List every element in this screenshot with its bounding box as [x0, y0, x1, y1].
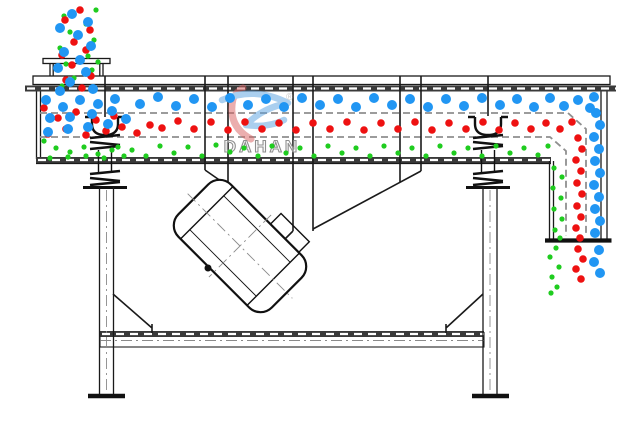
particle-blue: [529, 102, 539, 112]
particle-green: [85, 53, 90, 58]
particle-green: [47, 155, 52, 160]
vibrating-screen-diagram: ® DAHAN: [0, 0, 638, 428]
particle-red: [411, 118, 419, 126]
particle-blue: [81, 67, 91, 77]
particle-red: [511, 119, 519, 127]
particle-green: [479, 153, 484, 158]
particle-red: [572, 224, 580, 232]
particle-green: [465, 145, 470, 150]
particle-red: [61, 16, 69, 24]
particle-blue: [243, 100, 253, 110]
particle-green: [409, 145, 414, 150]
particle-green: [507, 150, 512, 155]
box-right-wall: [601, 88, 607, 239]
particle-blue: [153, 92, 163, 102]
particle-blue: [107, 106, 117, 116]
particle-red: [190, 125, 198, 133]
particle-blue: [41, 95, 51, 105]
particle-red: [577, 275, 585, 283]
particle-blue: [53, 63, 63, 73]
particle-red: [54, 114, 62, 122]
particle-green: [559, 216, 564, 221]
particle-blue: [75, 55, 85, 65]
particle-red: [542, 119, 550, 127]
particle-blue: [87, 109, 97, 119]
particle-red: [479, 118, 487, 126]
particle-green: [143, 153, 148, 158]
particle-green: [367, 153, 372, 158]
particle-red: [275, 119, 283, 127]
particle-green: [121, 153, 126, 158]
box-left-wall: [37, 88, 41, 159]
particle-green: [437, 143, 442, 148]
particle-green: [53, 145, 58, 150]
top-cover-bar: [33, 76, 610, 85]
particle-layer-blue: [41, 9, 605, 278]
particle-blue: [594, 192, 604, 202]
particle-blue: [423, 102, 433, 112]
hanger-pair-c: [400, 76, 421, 182]
particle-red: [577, 167, 585, 175]
particle-blue: [351, 102, 361, 112]
particle-blue: [387, 100, 397, 110]
particle-blue: [83, 17, 93, 27]
particle-blue: [512, 94, 522, 104]
particle-blue: [43, 127, 53, 137]
particle-red: [241, 118, 249, 126]
particle-red: [343, 118, 351, 126]
particle-blue: [594, 245, 604, 255]
particle-blue: [121, 114, 131, 124]
particle-red: [158, 124, 166, 132]
particle-blue: [590, 228, 600, 238]
particle-green: [423, 153, 428, 158]
particle-red: [258, 125, 266, 133]
particle-red: [445, 119, 453, 127]
particle-green: [557, 235, 562, 240]
particle-green: [548, 290, 553, 295]
particle-blue: [93, 99, 103, 109]
particle-blue: [86, 41, 96, 51]
particle-green: [551, 206, 556, 211]
particle-green: [255, 153, 260, 158]
particle-blue: [369, 93, 379, 103]
particle-green: [241, 145, 246, 150]
particle-red: [573, 179, 581, 187]
particle-green: [325, 143, 330, 148]
chute-left-wall: [550, 161, 554, 239]
support-leg-right: [446, 187, 509, 396]
support-leg-left: [88, 187, 152, 396]
particle-red: [527, 125, 535, 133]
particle-red: [428, 126, 436, 134]
hopper-diagonal-right: [313, 171, 421, 229]
particle-blue: [67, 9, 77, 19]
particle-blue: [207, 102, 217, 112]
particle-green: [227, 149, 232, 154]
particle-blue: [225, 93, 235, 103]
particle-blue: [297, 93, 307, 103]
particle-red: [462, 125, 470, 133]
particle-red: [40, 104, 48, 112]
particle-red: [326, 125, 334, 133]
particle-blue: [59, 47, 69, 57]
particle-blue: [595, 168, 605, 178]
particle-blue: [65, 112, 75, 122]
particle-red: [578, 145, 586, 153]
particle-green: [185, 144, 190, 149]
particle-blue: [545, 93, 555, 103]
particle-red: [224, 126, 232, 134]
particle-green: [171, 150, 176, 155]
particle-blue: [595, 216, 605, 226]
particle-green: [129, 147, 134, 152]
particle-green: [95, 151, 100, 156]
particle-blue: [58, 102, 68, 112]
particle-blue: [75, 95, 85, 105]
cross-beam: [100, 333, 484, 348]
leg-brace-left: [113, 294, 152, 333]
particle-red: [579, 255, 587, 263]
particle-blue: [559, 101, 569, 111]
particle-blue: [590, 156, 600, 166]
particle-red: [574, 134, 582, 142]
particle-red: [76, 6, 84, 14]
particle-green: [95, 59, 100, 64]
particle-blue: [110, 94, 120, 104]
particle-red: [573, 202, 581, 210]
particle-blue: [333, 94, 343, 104]
particle-red: [578, 190, 586, 198]
particle-green: [297, 145, 302, 150]
particle-blue: [589, 180, 599, 190]
particle-blue: [189, 94, 199, 104]
particle-red: [574, 245, 582, 253]
particle-green: [67, 149, 72, 154]
particle-red: [68, 61, 76, 69]
particle-blue: [590, 204, 600, 214]
particle-green: [101, 155, 106, 160]
particle-red: [394, 125, 402, 133]
watermark-text: DAHAN: [224, 137, 300, 156]
particle-blue: [495, 100, 505, 110]
particle-blue: [477, 93, 487, 103]
particle-red: [576, 234, 584, 242]
particle-red: [133, 129, 141, 137]
particle-blue: [83, 122, 93, 132]
particle-green: [554, 284, 559, 289]
particle-red: [78, 84, 86, 92]
particle-red: [377, 119, 385, 127]
particle-green: [213, 142, 218, 147]
particle-red: [495, 126, 503, 134]
particle-green: [65, 154, 70, 159]
particle-blue: [589, 132, 599, 142]
particle-red: [360, 126, 368, 134]
particle-green: [199, 153, 204, 158]
particle-red: [207, 118, 215, 126]
particle-blue: [405, 94, 415, 104]
particle-green: [269, 143, 274, 148]
particle-green: [552, 227, 557, 232]
particle-blue: [594, 144, 604, 154]
particle-green: [545, 143, 550, 148]
particle-red: [292, 126, 300, 134]
particle-blue: [55, 86, 65, 96]
particle-green: [549, 274, 554, 279]
particle-green: [381, 143, 386, 148]
particle-green: [157, 143, 162, 148]
particle-red: [118, 123, 126, 131]
particle-red: [577, 213, 585, 221]
particle-blue: [55, 23, 65, 33]
particle-green: [547, 254, 552, 259]
particle-green: [109, 147, 114, 152]
particle-blue: [45, 113, 55, 123]
particle-green: [115, 144, 120, 149]
particle-red: [572, 265, 580, 273]
particle-green: [550, 185, 555, 190]
particle-green: [93, 7, 98, 12]
particle-green: [83, 153, 88, 158]
particle-blue: [73, 30, 83, 40]
particle-blue: [171, 101, 181, 111]
particle-red: [556, 125, 564, 133]
particle-red: [572, 156, 580, 164]
particle-red: [309, 119, 317, 127]
particle-blue: [279, 102, 289, 112]
particle-blue: [595, 120, 605, 130]
particle-blue: [591, 108, 601, 118]
particle-red: [86, 26, 94, 34]
particle-green: [339, 150, 344, 155]
particle-green: [556, 264, 561, 269]
particle-green: [559, 174, 564, 179]
particle-blue: [63, 124, 73, 134]
particle-blue: [595, 268, 605, 278]
particle-blue: [315, 100, 325, 110]
particle-red: [174, 117, 182, 125]
particle-green: [311, 153, 316, 158]
leg-brace-right: [446, 294, 483, 333]
particle-green: [283, 150, 288, 155]
particle-green: [63, 61, 68, 66]
particle-blue: [573, 95, 583, 105]
particle-green: [395, 150, 400, 155]
particle-green: [353, 145, 358, 150]
spring-support-right: [466, 117, 510, 188]
particle-green: [67, 29, 72, 34]
particle-blue: [65, 77, 75, 87]
particle-green: [81, 144, 86, 149]
particle-blue: [88, 84, 98, 94]
particle-green: [493, 143, 498, 148]
particle-red: [146, 121, 154, 129]
particle-blue: [135, 99, 145, 109]
particle-red: [568, 118, 576, 126]
particle-green: [41, 138, 46, 143]
particle-blue: [441, 94, 451, 104]
motor-drain-plug: [205, 265, 212, 272]
particle-green: [558, 195, 563, 200]
particle-green: [553, 245, 558, 250]
particle-green: [451, 150, 456, 155]
vibration-motor: [157, 157, 330, 330]
particle-blue: [589, 257, 599, 267]
particle-red: [82, 131, 90, 139]
particle-layer-green: [41, 7, 564, 295]
particle-green: [521, 145, 526, 150]
particle-blue: [589, 92, 599, 102]
particle-blue: [103, 119, 113, 129]
particle-blue: [459, 101, 469, 111]
particle-green: [535, 152, 540, 157]
particle-green: [551, 165, 556, 170]
registered-mark: ®: [286, 92, 294, 103]
particle-blue: [261, 94, 271, 104]
